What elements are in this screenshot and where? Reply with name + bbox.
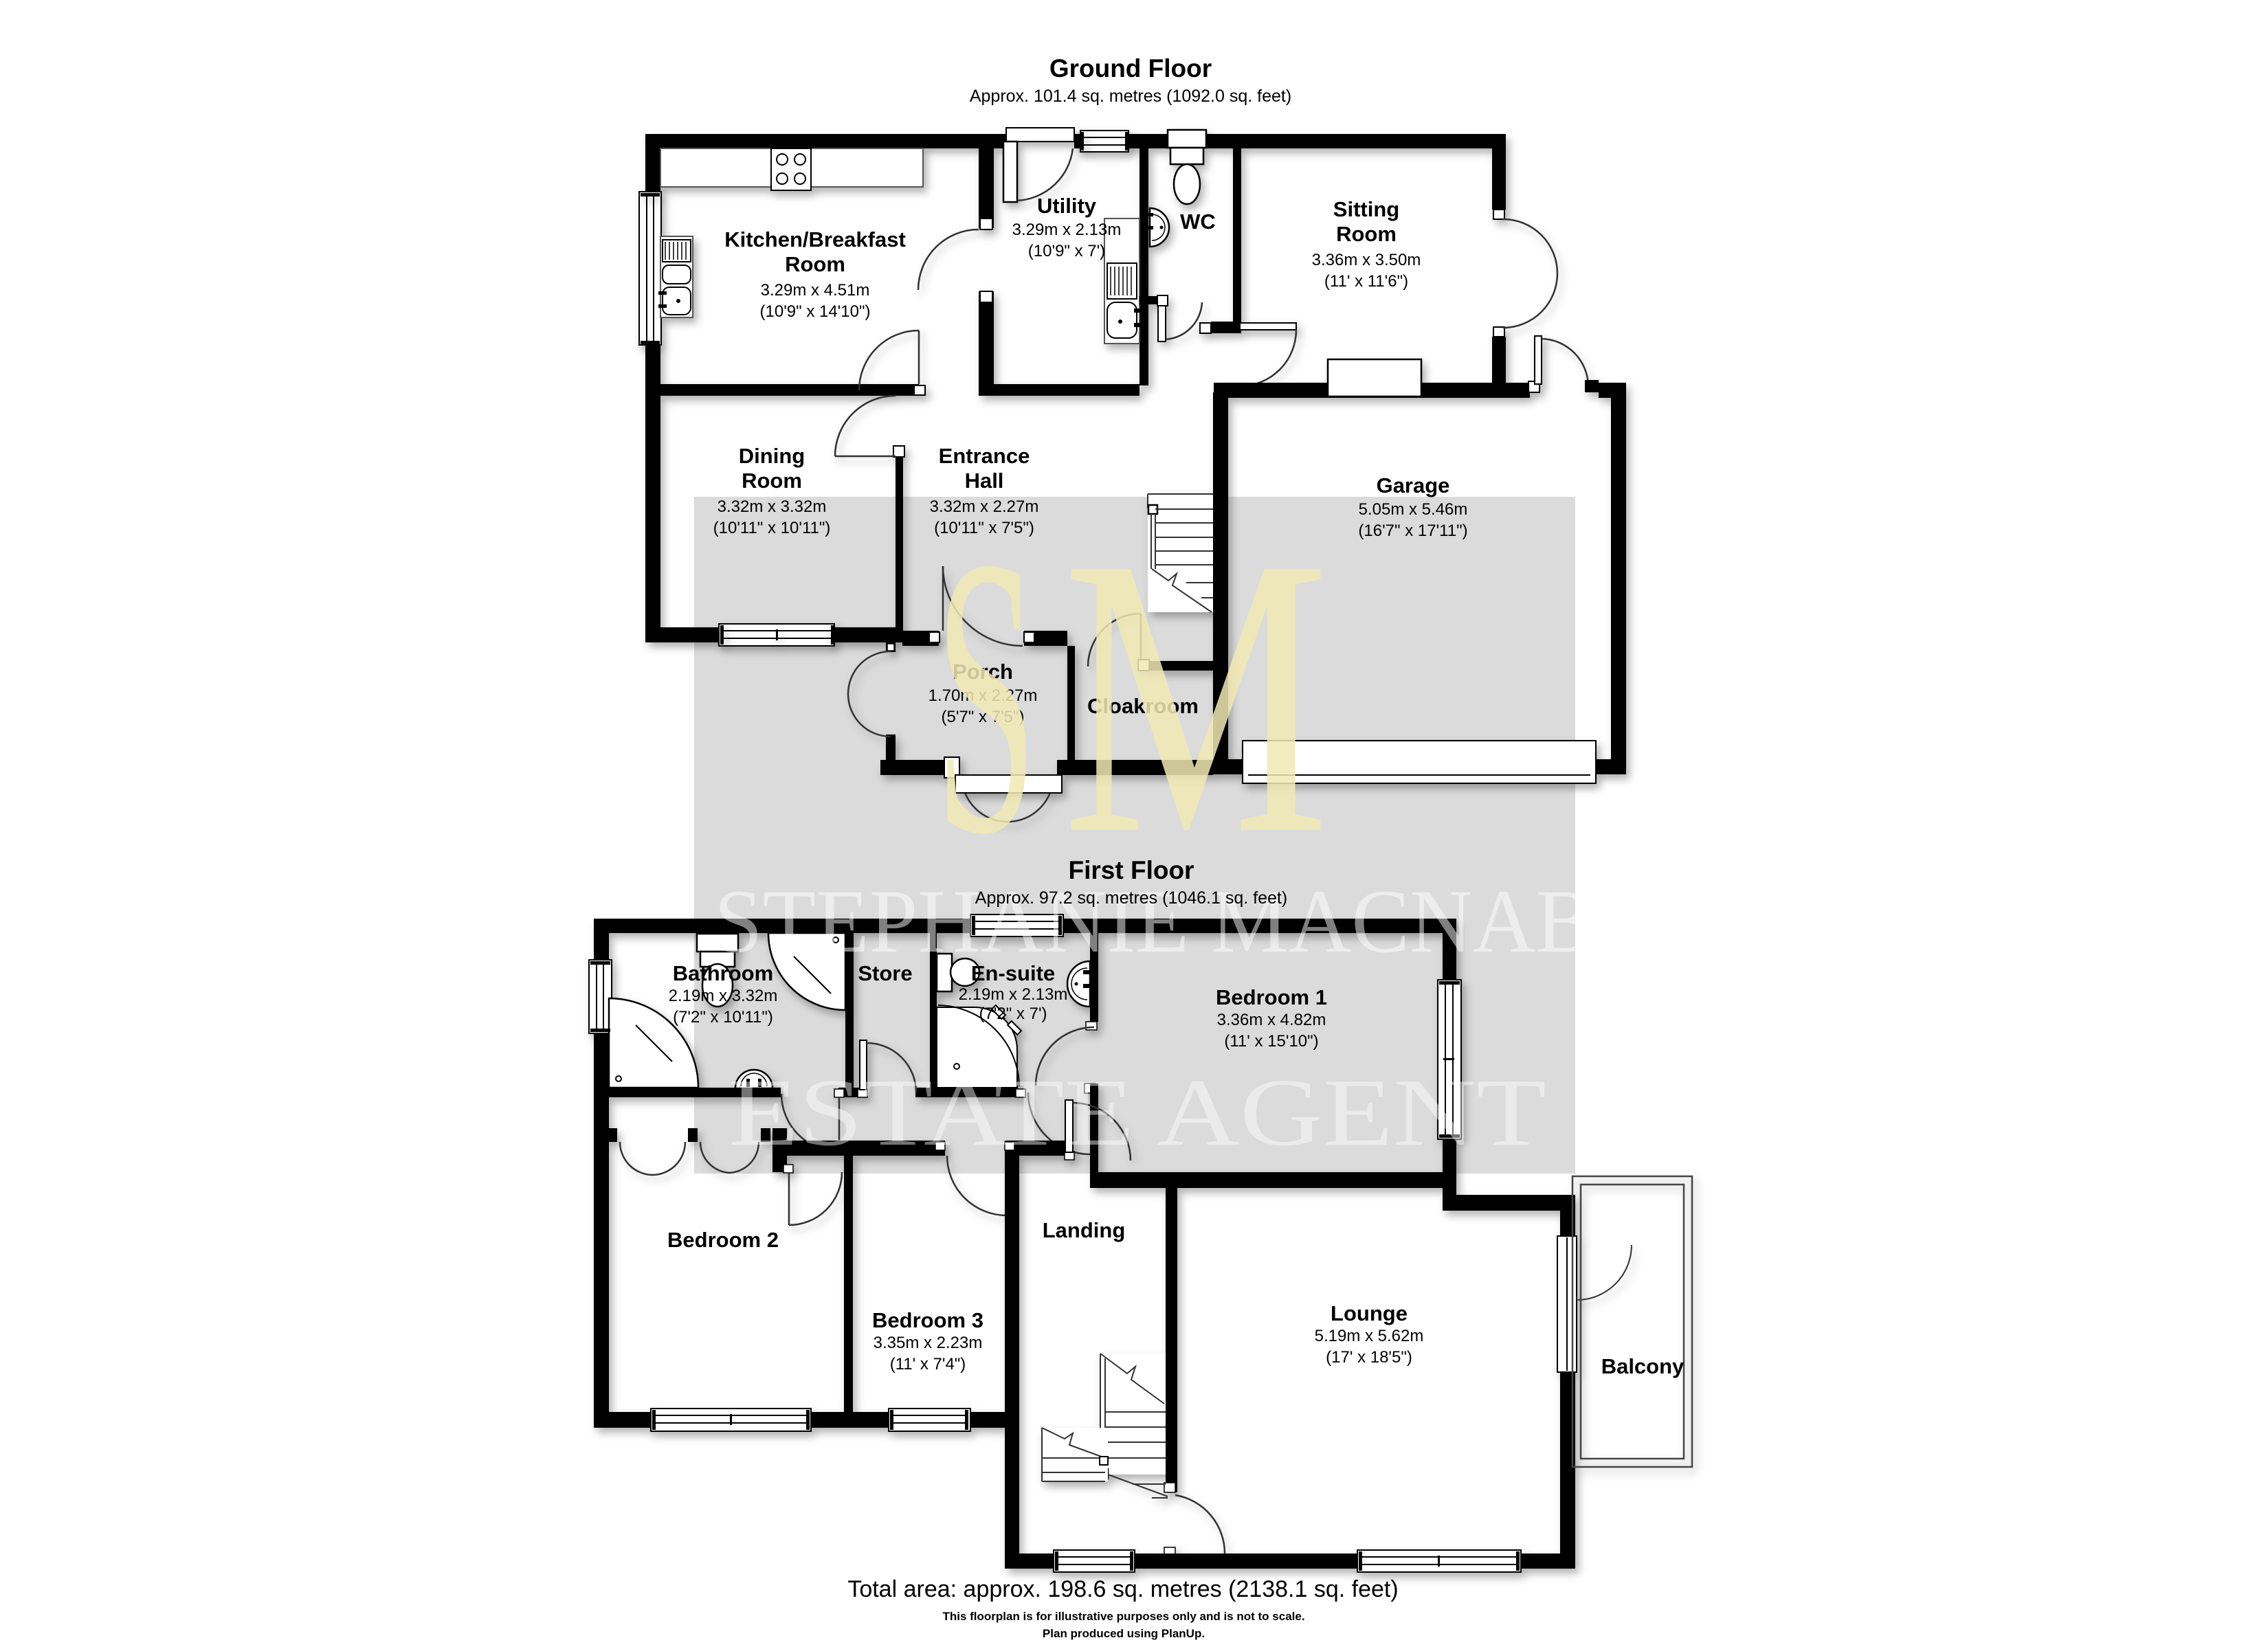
svg-text:3.36m x 3.50m: 3.36m x 3.50m bbox=[1312, 251, 1421, 269]
svg-text:(16'7" x 17'11"): (16'7" x 17'11") bbox=[1358, 521, 1467, 540]
svg-text:Bedroom 3: Bedroom 3 bbox=[872, 1308, 983, 1332]
svg-text:STEPHANIE MACNAB: STEPHANIE MACNAB bbox=[714, 871, 1594, 972]
svg-text:This floorplan is for illustra: This floorplan is for illustrative purpo… bbox=[942, 1610, 1304, 1623]
svg-text:Bedroom 1: Bedroom 1 bbox=[1216, 985, 1327, 1009]
svg-text:Ground Floor: Ground Floor bbox=[1049, 54, 1212, 82]
svg-text:3.35m x 2.23m: 3.35m x 2.23m bbox=[874, 1334, 983, 1352]
svg-text:Landing: Landing bbox=[1043, 1218, 1126, 1242]
svg-text:(10'9" x 7'): (10'9" x 7') bbox=[1028, 242, 1105, 260]
svg-text:Room: Room bbox=[742, 469, 802, 493]
svg-text:3.29m x 2.13m: 3.29m x 2.13m bbox=[1012, 221, 1122, 239]
svg-text:3.32m x 3.32m: 3.32m x 3.32m bbox=[718, 497, 827, 516]
svg-text:5.05m x 5.46m: 5.05m x 5.46m bbox=[1359, 500, 1468, 519]
svg-text:Garage: Garage bbox=[1377, 473, 1450, 497]
svg-text:(11' x 7'4"): (11' x 7'4") bbox=[890, 1355, 966, 1373]
svg-text:(11' x 15'10"): (11' x 15'10") bbox=[1224, 1032, 1318, 1051]
svg-text:Approx. 101.4 sq. metres (1092: Approx. 101.4 sq. metres (1092.0 sq. fee… bbox=[970, 87, 1291, 106]
svg-text:(17' x 18'5"): (17' x 18'5") bbox=[1326, 1348, 1412, 1367]
svg-text:ESTATE AGENT: ESTATE AGENT bbox=[729, 1059, 1546, 1166]
svg-text:Room: Room bbox=[785, 252, 845, 276]
svg-text:5.19m x 5.62m: 5.19m x 5.62m bbox=[1315, 1327, 1424, 1345]
svg-text:Sitting: Sitting bbox=[1333, 197, 1399, 221]
svg-text:First Floor: First Floor bbox=[1069, 856, 1194, 884]
svg-text:3.29m x 4.51m: 3.29m x 4.51m bbox=[761, 281, 870, 300]
svg-text:(10'9" x 14'10"): (10'9" x 14'10") bbox=[760, 302, 871, 321]
svg-text:3.36m x 4.82m: 3.36m x 4.82m bbox=[1217, 1011, 1326, 1029]
svg-text:Bedroom 2: Bedroom 2 bbox=[667, 1228, 779, 1252]
svg-text:Approx. 97.2 sq. metres (1046.: Approx. 97.2 sq. metres (1046.1 sq. feet… bbox=[975, 888, 1287, 908]
svg-text:(7'2" x 10'11"): (7'2" x 10'11") bbox=[673, 1008, 773, 1027]
svg-text:Dining: Dining bbox=[739, 444, 805, 468]
svg-text:Lounge: Lounge bbox=[1331, 1301, 1408, 1325]
svg-text:Room: Room bbox=[1336, 222, 1397, 246]
svg-text:Kitchen/Breakfast: Kitchen/Breakfast bbox=[724, 227, 906, 251]
svg-text:(11' x 11'6"): (11' x 11'6") bbox=[1324, 272, 1408, 291]
svg-text:WC: WC bbox=[1180, 210, 1216, 234]
svg-text:S: S bbox=[935, 475, 1038, 917]
svg-text:Utility: Utility bbox=[1037, 194, 1097, 218]
svg-text:2.19m x 3.32m: 2.19m x 3.32m bbox=[669, 987, 778, 1005]
svg-text:Entrance: Entrance bbox=[939, 444, 1030, 468]
svg-text:Balcony: Balcony bbox=[1601, 1354, 1685, 1378]
svg-text:Total area: approx. 198.6 sq.: Total area: approx. 198.6 sq. metres (21… bbox=[847, 1576, 1398, 1602]
svg-text:(7'2" x 7'): (7'2" x 7') bbox=[979, 1005, 1047, 1023]
svg-text:Plan produced using PlanUp.: Plan produced using PlanUp. bbox=[1043, 1627, 1205, 1640]
svg-text:(10'11" x 10'11"): (10'11" x 10'11") bbox=[713, 519, 831, 537]
svg-text:2.19m x 2.13m: 2.19m x 2.13m bbox=[959, 985, 1068, 1004]
svg-text:M: M bbox=[1063, 475, 1329, 917]
